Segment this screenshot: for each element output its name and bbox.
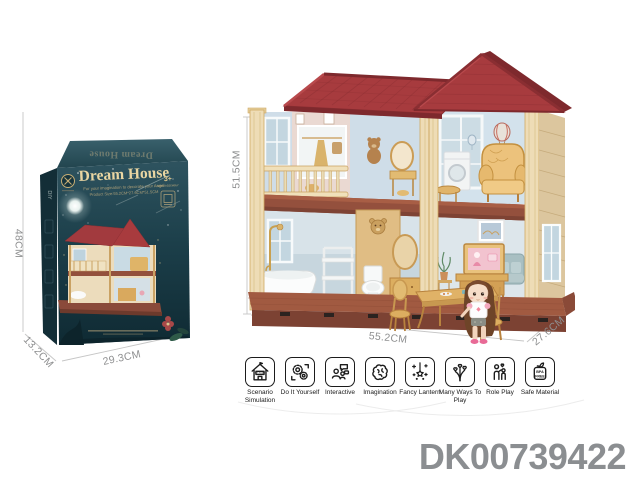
bpa-free-badge-icon: BPA FREE	[529, 361, 551, 383]
sofa-couch	[479, 144, 527, 202]
washing-machine	[444, 152, 470, 190]
scenario-simulation-house-icon: MY HOME	[249, 361, 271, 383]
box-bottom-tagline-2	[103, 334, 143, 335]
moon	[66, 197, 84, 215]
svg-text:BPA: BPA	[536, 370, 544, 374]
product-listing-image: Dream House DIY	[0, 0, 640, 480]
box-top-flap-title: Dream House	[89, 148, 153, 160]
imagination-brain-icon	[369, 361, 391, 383]
many-ways-hearts-icon	[449, 361, 471, 383]
box-bottom-tagline	[88, 330, 158, 332]
base-platform	[248, 292, 575, 332]
house-height-label: 51.5CM	[231, 146, 244, 194]
feature-interactive: Interactive	[320, 357, 360, 405]
doll-girl	[462, 280, 496, 344]
feature-scenario-simulation: MY HOME Scenario Simulation	[240, 357, 280, 405]
feature-safe-material: BPA FREE Safe Material	[520, 357, 560, 405]
dollhouse-photo	[240, 40, 575, 352]
box-spine-text: DIY	[46, 190, 52, 200]
feature-many-ways-to-play: Many Ways To Play	[440, 357, 480, 405]
box-photo: Dream House DIY	[18, 95, 203, 375]
svg-text:FREE: FREE	[535, 374, 545, 378]
feature-imagination: Imagination	[360, 357, 400, 405]
fancy-lantern-star-icon	[409, 361, 431, 383]
diy-gear-puzzle-icon	[289, 361, 311, 383]
feature-fancy-lantern: Fancy Lantern	[400, 357, 440, 405]
feature-do-it-yourself: Do It Yourself	[280, 357, 320, 405]
product-code: DK00739422	[419, 436, 626, 478]
teddy-bear	[367, 137, 381, 164]
feature-role-play: Role Play	[480, 357, 520, 405]
age-badge: 3+	[164, 176, 172, 183]
role-play-family-icon	[489, 361, 511, 383]
feature-icons-row: MY HOME Scenario Simulation Do It Yourse…	[240, 357, 560, 405]
feature-label: Safe Material	[517, 389, 563, 397]
interactive-people-chat-icon	[329, 361, 351, 383]
picture-frame	[478, 220, 504, 242]
svg-text:MY HOME: MY HOME	[255, 373, 266, 375]
side-wood-panel	[539, 110, 565, 308]
box-height-label: 48CM	[12, 220, 25, 268]
